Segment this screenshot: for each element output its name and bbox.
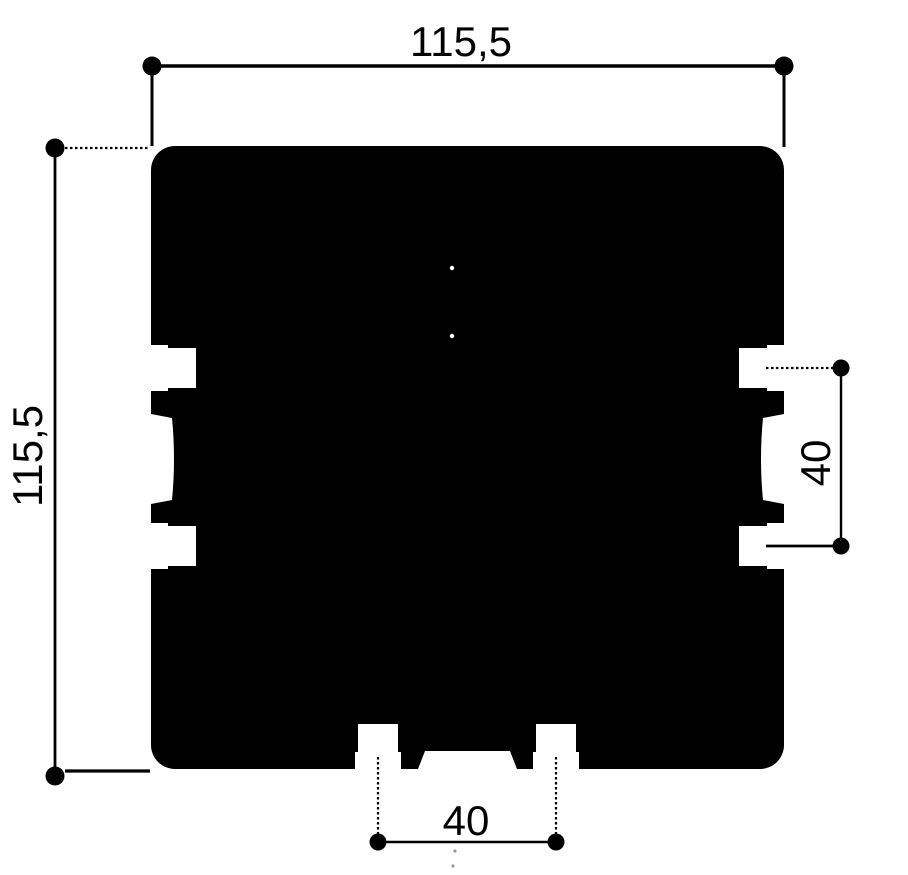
scan-artifact — [450, 334, 454, 338]
dimension-label-left-height: 115,5 — [4, 405, 51, 507]
scan-artifact — [451, 864, 454, 867]
dimension-endpoint-dot — [775, 57, 794, 76]
dimension-label-top-width: 115,5 — [410, 18, 512, 65]
dimension-left-height: 115,5 — [4, 139, 150, 786]
dimension-top-width: 115,5 — [143, 18, 794, 147]
scan-artifact — [453, 849, 456, 852]
dimension-endpoint-dot — [548, 834, 565, 851]
dimension-right-slot-pitch: 40 — [766, 360, 850, 555]
drawing-page: 115,5 115,5 40 40 — [0, 0, 908, 875]
dimension-endpoint-dot — [370, 834, 387, 851]
scan-artifact — [450, 266, 454, 270]
dimension-endpoint-dot — [833, 538, 850, 555]
profile-silhouette — [151, 146, 784, 769]
dimension-label-right-slot-pitch: 40 — [792, 440, 839, 487]
dimension-endpoint-dot — [46, 767, 65, 786]
dimension-label-bottom-slot-pitch: 40 — [443, 797, 490, 844]
profile-section — [151, 146, 784, 868]
dimension-endpoint-dot — [46, 139, 65, 158]
dimension-endpoint-dot — [143, 57, 162, 76]
dimension-endpoint-dot — [833, 360, 850, 377]
technical-drawing-canvas: 115,5 115,5 40 40 — [0, 0, 908, 875]
dimension-bottom-slot-pitch: 40 — [370, 757, 565, 851]
